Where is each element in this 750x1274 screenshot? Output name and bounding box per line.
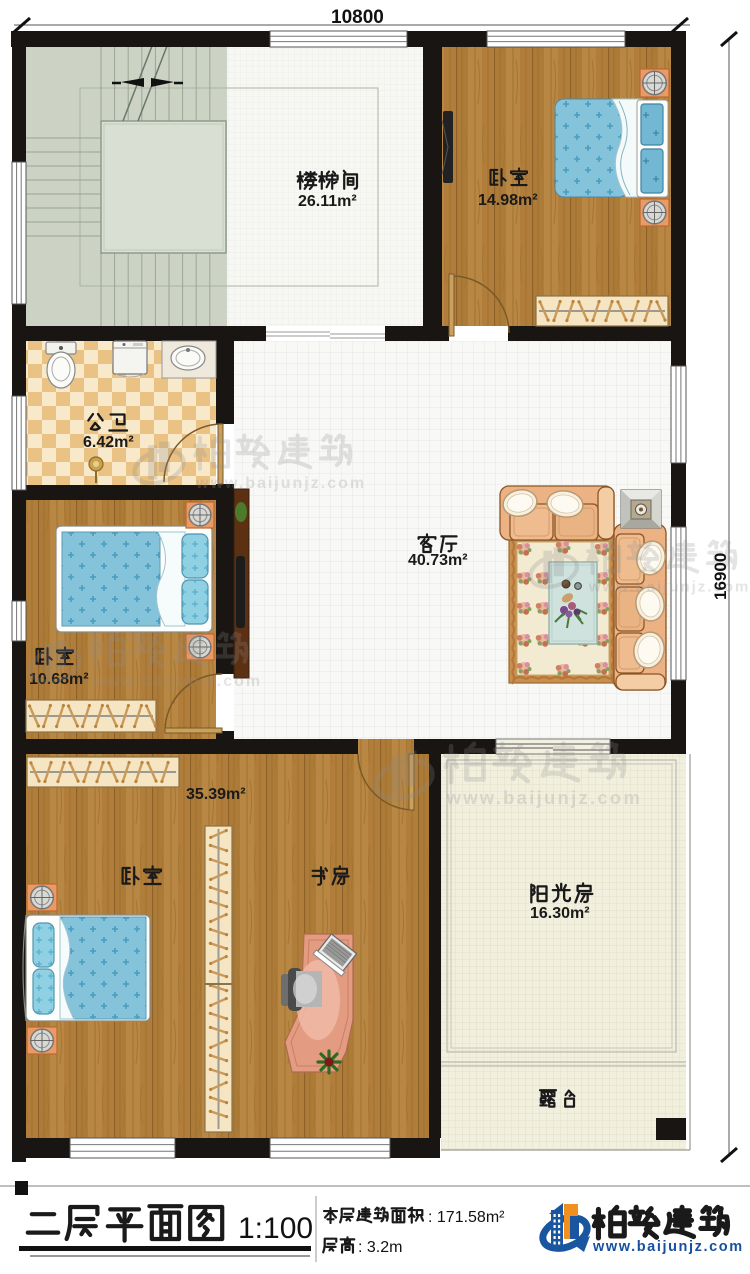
svg-text:16.30m²: 16.30m² xyxy=(530,905,590,922)
svg-text:: 171.58m²: : 171.58m² xyxy=(428,1209,505,1226)
svg-text:www.baijunjz.com: www.baijunjz.com xyxy=(446,787,643,808)
svg-text:: 3.2m: : 3.2m xyxy=(358,1239,402,1256)
svg-text:26.11m²: 26.11m² xyxy=(298,193,357,210)
svg-text:10800: 10800 xyxy=(331,7,384,28)
svg-text:www.baijunjz.com: www.baijunjz.com xyxy=(195,475,366,492)
svg-text:16900: 16900 xyxy=(711,553,730,600)
svg-text:www.baijunjz.com: www.baijunjz.com xyxy=(592,1239,744,1255)
svg-text:6.42m²: 6.42m² xyxy=(83,434,134,451)
svg-text:14.98m²: 14.98m² xyxy=(478,192,538,209)
svg-text:35.39m²: 35.39m² xyxy=(186,786,246,803)
svg-text:1:100: 1:100 xyxy=(238,1212,313,1245)
svg-text:40.73m²: 40.73m² xyxy=(408,552,468,569)
svg-text:www.baijunjz.com: www.baijunjz.com xyxy=(91,673,262,690)
